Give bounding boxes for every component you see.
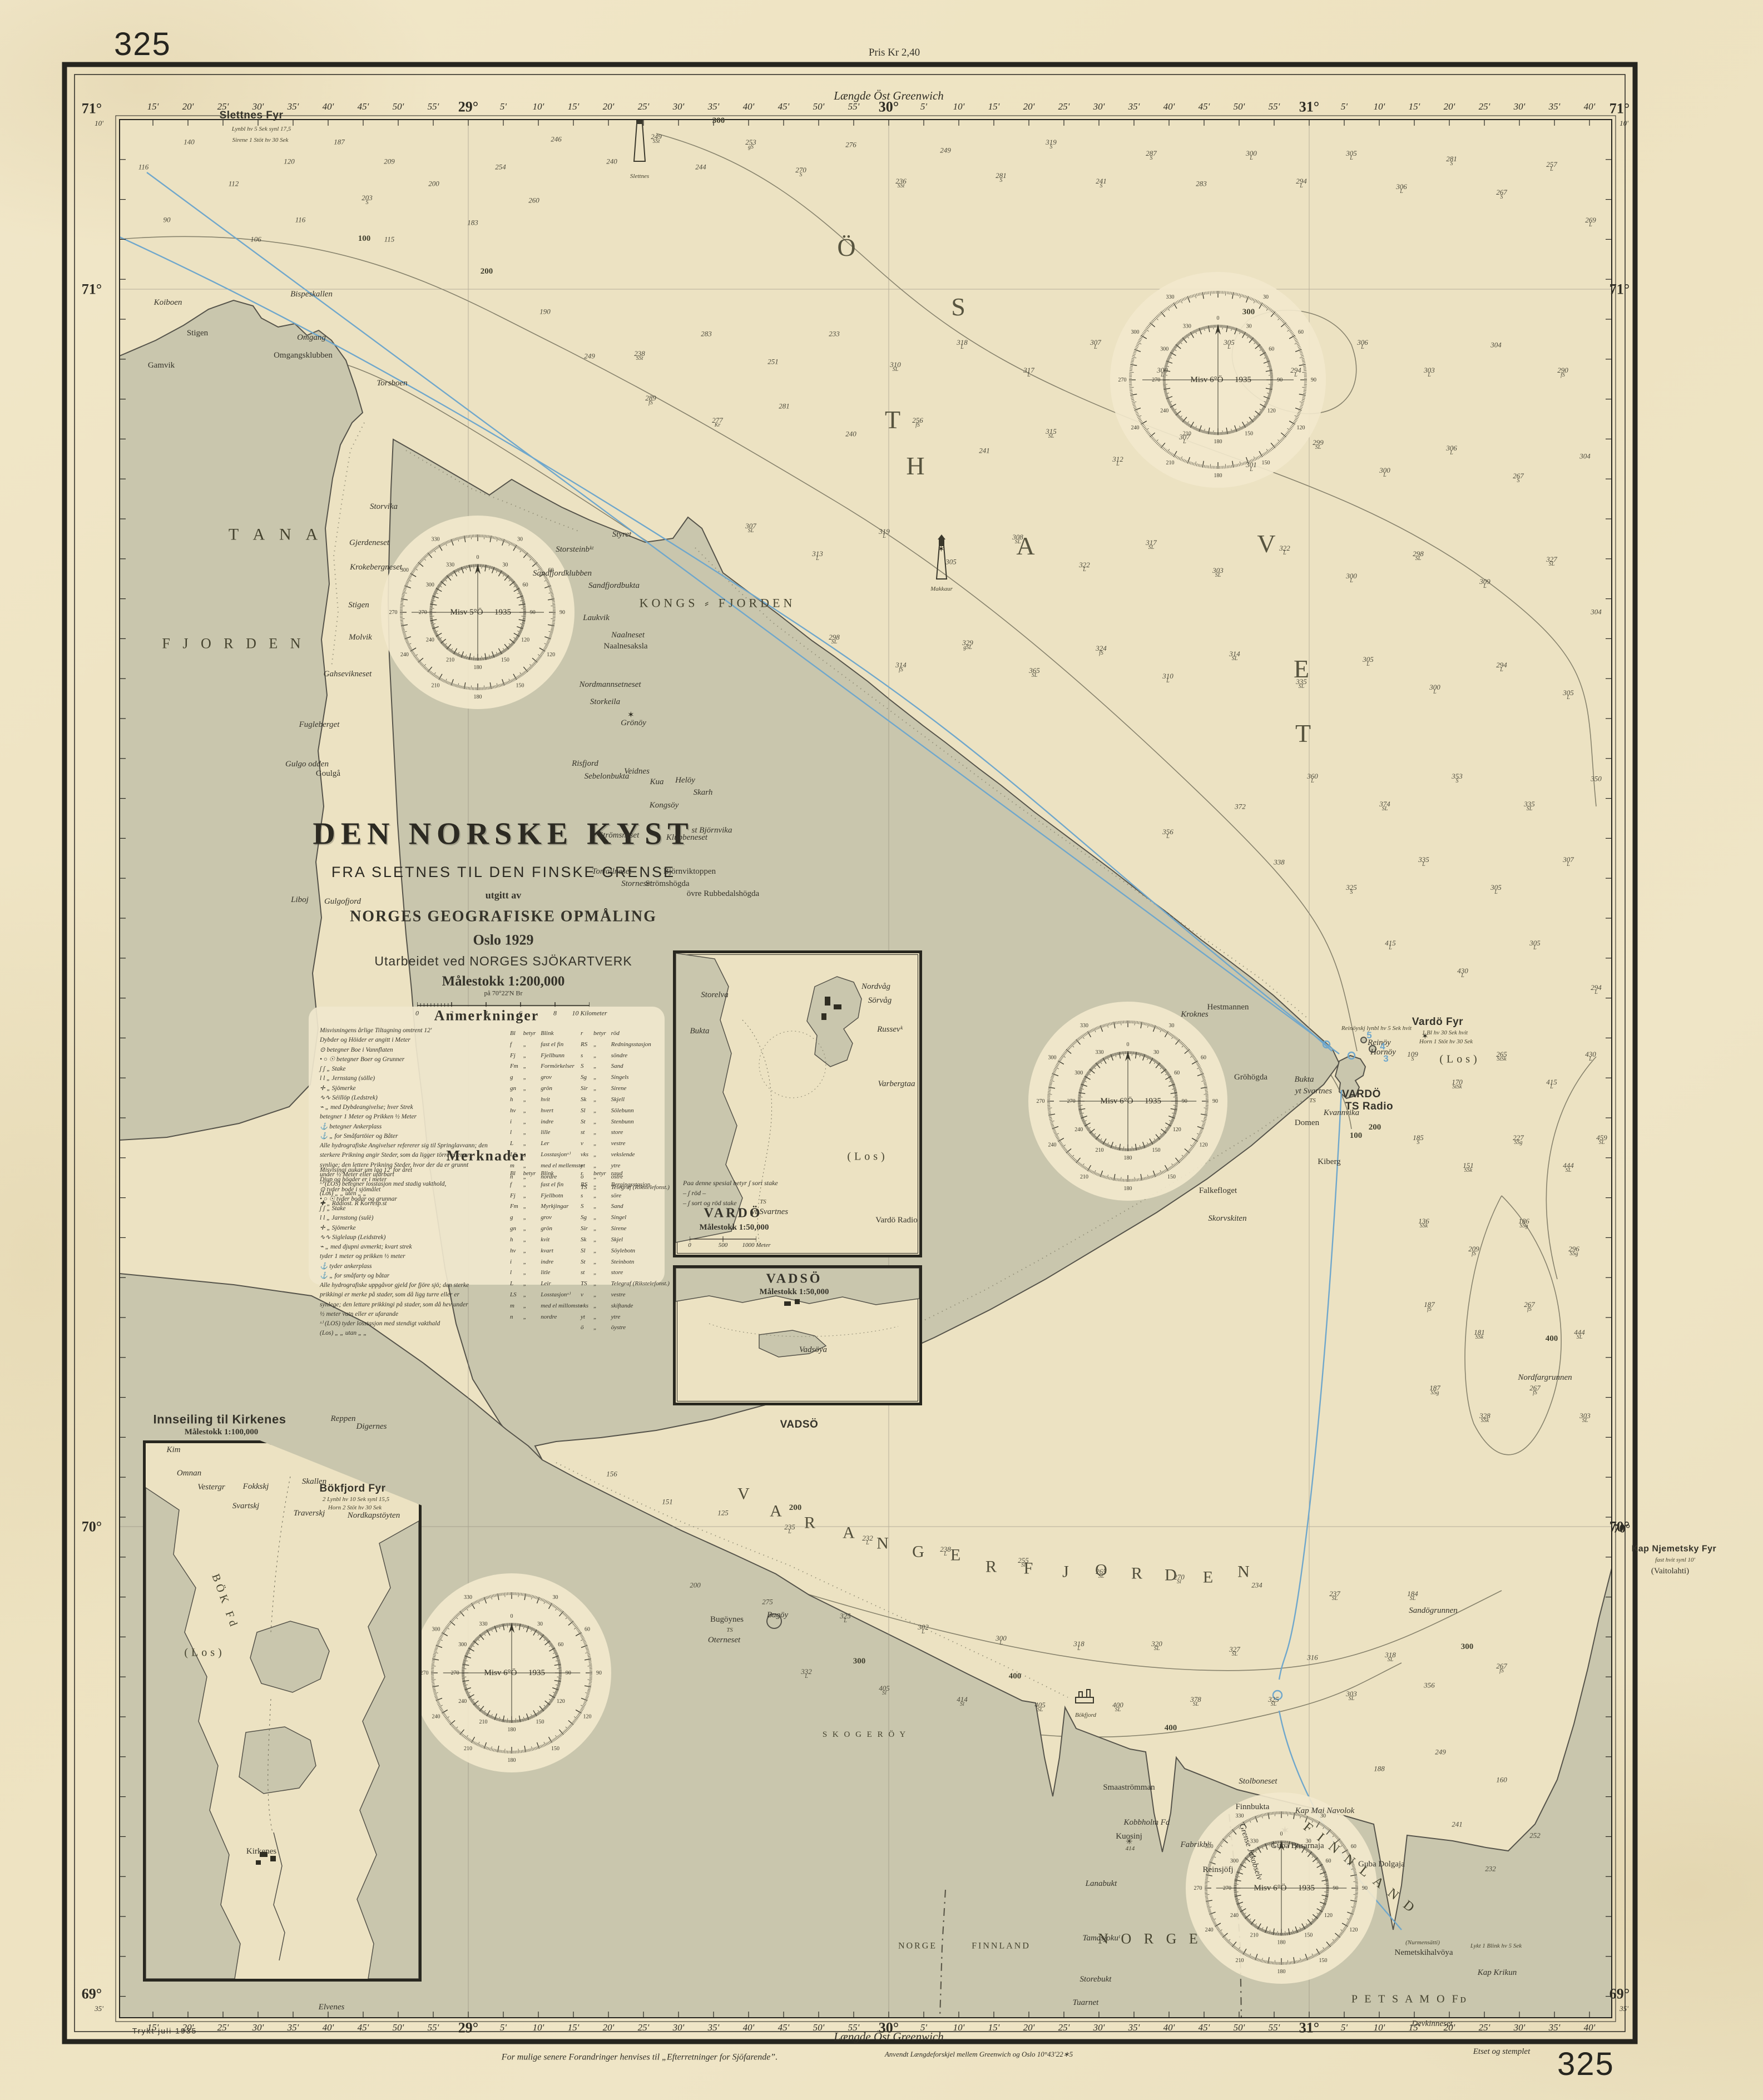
spread-name: P E T S A M O Fᴅ	[1351, 1994, 1468, 2005]
place-label: Nordkapstöyten	[348, 1512, 400, 1520]
sounding: 309L	[1479, 578, 1490, 590]
sea-name-osthavet-letter: H	[906, 453, 924, 479]
lon-label-top: 45'	[778, 102, 790, 112]
svg-text:120: 120	[1296, 425, 1305, 431]
place-label: Stigen	[348, 601, 369, 610]
place-label: Goulgå	[316, 770, 340, 779]
lon-label-top: 35'	[708, 102, 720, 112]
svg-text:180: 180	[1124, 1186, 1132, 1192]
sounding: 306L	[1396, 184, 1407, 195]
sounding: 265SL	[1096, 1568, 1107, 1579]
place-label: 414	[1126, 1846, 1135, 1853]
svg-text:300: 300	[1074, 1070, 1083, 1076]
place-label: Gahsevikneset	[324, 670, 372, 679]
sounding: 235L	[784, 1524, 795, 1535]
place-label: Bugöy	[767, 1611, 788, 1620]
lon-label-bottom: 30°	[879, 2020, 899, 2035]
sea-name-varangerfjorden-letter: G	[912, 1543, 924, 1561]
sounding: 181SSk	[1474, 1329, 1485, 1340]
sounding: 140	[184, 138, 195, 145]
legend-mrk-abbr-1: BlbetyrBlinkf„fast el finFj„FjellbotnFm„…	[509, 1168, 587, 1323]
sea-name-osthavet-letter: T	[885, 407, 900, 433]
meridian-note: Anvendt Længdeforskjel mellem Greenwich …	[885, 2051, 1073, 2058]
inset-kirkenes	[143, 1440, 422, 1982]
contour-depth-label: 300	[1461, 1643, 1474, 1652]
lon-label-bottom: 25'	[1479, 2023, 1490, 2033]
contour-depth-label: 300	[712, 117, 725, 126]
sounding: 372	[1235, 803, 1246, 809]
lat-label-left: 69°	[82, 1986, 102, 2001]
lon-label-top: 40'	[1163, 102, 1175, 112]
place-label: Nordfargrunnen	[1518, 1374, 1572, 1383]
svg-text:240: 240	[1048, 1142, 1057, 1148]
lon-label-bottom: 10'	[533, 2023, 544, 2033]
sounding: 270S	[795, 167, 806, 178]
sounding: 317SL	[1146, 539, 1157, 551]
sounding: 112	[229, 180, 239, 186]
place-label: TS	[726, 1627, 733, 1634]
place-label: Krokebergneset	[350, 563, 402, 572]
svg-text:240: 240	[1205, 1927, 1214, 1933]
sea-name-osthavet-letter: S	[951, 294, 965, 320]
sounding: 400SL	[1112, 1702, 1123, 1713]
sounding: 405Sl	[879, 1685, 890, 1696]
svg-text:180: 180	[1214, 473, 1222, 479]
sounding: 203S	[361, 195, 373, 206]
sounding: 305	[945, 558, 957, 564]
sounding: 325SL	[1268, 1696, 1279, 1707]
sounding: 238L	[940, 1546, 951, 1557]
svg-text:240: 240	[1074, 1127, 1083, 1133]
svg-text:210: 210	[432, 683, 440, 689]
svg-text:30: 30	[1246, 324, 1252, 330]
sounding: 270Sl	[1173, 1574, 1185, 1585]
lon-label-top: 20'	[603, 102, 615, 112]
sounding: 170StSk	[1452, 1079, 1463, 1090]
place-label: Fugleberget	[299, 721, 340, 730]
lon-label-bottom: 5'	[1341, 2023, 1348, 2033]
sounding: 90	[164, 216, 171, 222]
inset-vadso-title: VADSÖ	[766, 1272, 823, 1286]
lon-label-top: 10'	[953, 102, 965, 112]
place-label: Svartskj	[232, 1502, 259, 1511]
svg-text:240: 240	[432, 1714, 440, 1720]
sounding: 276	[845, 141, 856, 147]
kap-njemetsky-title: Kap Njemetsky Fyr	[1632, 1545, 1717, 1554]
sounding: 209fS	[1468, 1246, 1479, 1257]
lon-label-top: 20'	[182, 102, 194, 112]
svg-text:1935: 1935	[494, 608, 511, 617]
sounding: 322L	[1279, 545, 1290, 556]
lon-label-bottom: 55'	[428, 2023, 439, 2033]
place-label: 1 Bl hv 30 Sek hvit	[1422, 1030, 1468, 1037]
lon-label-top: 20'	[1023, 102, 1035, 112]
svg-text:0: 0	[1217, 315, 1220, 321]
lon-label-bottom: 55'	[1269, 2023, 1280, 2033]
place-label: Vestergr	[197, 1483, 225, 1492]
svg-text:270: 270	[1194, 1885, 1202, 1891]
svg-text:150: 150	[536, 1719, 544, 1725]
sounding: 310L	[1162, 673, 1173, 684]
lon-label-top: 31°	[1299, 99, 1319, 114]
lon-label-top: 30°	[879, 99, 899, 114]
sounding: 241	[1452, 1821, 1463, 1827]
compass-rose: 3060901201501802102402703003300306090120…	[1028, 1002, 1227, 1201]
svg-text:300: 300	[458, 1642, 467, 1648]
lat-min-right: 10'	[1620, 120, 1628, 127]
place-label: Kobbholm Fd	[1124, 1819, 1170, 1827]
sea-name-osthavet-letter: Ö	[837, 234, 855, 261]
sounding: 301L	[1246, 462, 1257, 473]
sounding: 325L	[840, 1613, 851, 1624]
svg-text:150: 150	[551, 1746, 559, 1752]
sounding: 319S	[1046, 139, 1057, 150]
corrections-note: For mulige senere Forandringer henvises …	[502, 2053, 777, 2063]
spread-name: F J O R D E N	[162, 636, 305, 651]
sounding: 305L	[1490, 884, 1502, 895]
place-label: Kirkenes	[246, 1848, 276, 1856]
sounding: 294L	[1290, 367, 1301, 378]
lon-label-top: 30'	[252, 102, 264, 112]
place-label: Naalnesaksla	[603, 642, 647, 651]
publisher: NORGES GEOGRAFISKE OPMÅLING	[350, 908, 657, 924]
lat-label-left: 70°	[82, 1519, 102, 1534]
sounding: 188	[1374, 1765, 1385, 1771]
svg-text:240: 240	[1131, 425, 1140, 431]
svg-text:330: 330	[1183, 324, 1191, 330]
lon-label-bottom: 50'	[393, 2023, 404, 2033]
svg-text:Misv 6°Ö: Misv 6°Ö	[1191, 375, 1224, 384]
place-label: Lanabukt	[1086, 1880, 1117, 1889]
place-label: Fabrikbᵏᵗ	[1180, 1841, 1211, 1850]
sounding: 256fS	[912, 417, 923, 428]
place-label: Kap Krikun	[1478, 1969, 1517, 1978]
place-label: Liboj	[291, 896, 309, 905]
place-label: Sandfjordklubben	[533, 569, 592, 578]
lon-label-top: 50'	[1234, 102, 1245, 112]
sounding: 414Sl	[957, 1696, 968, 1707]
sounding: 307L	[1563, 856, 1574, 868]
sounding: 303L	[1424, 367, 1435, 378]
place-label: Strömsneset	[599, 831, 640, 840]
sounding: 281S	[996, 172, 1007, 184]
place-label: 2 Lynbl hv 10 Sek synl 15,5	[323, 1497, 389, 1503]
place-label: Smaaströmman	[1103, 1784, 1155, 1792]
place-label: Koiboen	[154, 299, 182, 308]
sounding: 300L	[1157, 367, 1168, 378]
sounding: 459SL	[1596, 1135, 1607, 1146]
place-label: Digernes	[356, 1423, 387, 1432]
place-label: Strömshögda	[645, 880, 689, 889]
sounding: 313L	[812, 551, 823, 562]
inset-vardo-label: TS	[760, 1199, 766, 1206]
svg-text:60: 60	[1201, 1055, 1206, 1061]
compass-rose: 3060901201501802102402703003300306090120…	[381, 516, 575, 709]
lon-label-top: 40'	[323, 102, 334, 112]
lon-label-bottom: 25'	[638, 2023, 650, 2033]
place-label: Torsboen	[377, 379, 407, 388]
svg-text:150: 150	[1304, 1932, 1313, 1938]
place-label: Kap Mai Navolok	[1295, 1807, 1355, 1816]
place-label: Gulgo odden	[285, 760, 329, 769]
sounding: 232L	[862, 1535, 873, 1546]
place-label: VADSÖ	[780, 1419, 819, 1430]
lon-label-bottom: 45'	[358, 2023, 369, 2033]
sounding: 251	[767, 358, 779, 364]
sounding: 300L	[1379, 467, 1390, 478]
scale-bar-tick: 4	[484, 1010, 488, 1017]
lat-label-right: 71°	[1610, 101, 1630, 116]
svg-text:180: 180	[508, 1727, 516, 1733]
svg-text:120: 120	[583, 1714, 591, 1720]
lat-min-left: 10'	[95, 120, 103, 127]
compass-rose: 3060901201501802102402703003300306090120…	[1110, 272, 1326, 488]
place-label: Bispeskallen	[290, 290, 333, 299]
scale-bar-tick: 8	[553, 1010, 557, 1017]
sounding: 249	[940, 147, 951, 153]
svg-text:240: 240	[1160, 408, 1168, 414]
compass-rose: 3060901201501802102402703003300306090120…	[412, 1573, 611, 1772]
sounding: 314SL	[1229, 651, 1240, 662]
svg-text:330: 330	[432, 536, 440, 542]
lon-label-bottom: 40'	[1584, 2023, 1596, 2033]
sounding: 267fS	[1524, 1301, 1535, 1312]
sounding: 267S	[1496, 189, 1507, 200]
svg-text:180: 180	[1277, 1969, 1286, 1975]
chart-number-top-left: 325	[114, 26, 171, 63]
svg-text:Misv 5°Ö: Misv 5°Ö	[450, 607, 483, 617]
place-label: Kongsöy	[650, 801, 679, 810]
svg-text:270: 270	[389, 610, 398, 616]
place-label: Laukvik	[583, 614, 609, 623]
sea-name-varangerfjorden-letter: E	[950, 1546, 960, 1564]
lon-label-top: 55'	[848, 102, 860, 112]
place-label: Storebukt	[1080, 1975, 1112, 1984]
sounding: 298SL	[829, 634, 840, 645]
lon-label-bottom: 15'	[147, 2023, 159, 2033]
svg-text:150: 150	[1262, 460, 1270, 466]
sounding: 187	[334, 138, 345, 145]
place-label: Björnviktoppen	[663, 868, 716, 876]
svg-text:300: 300	[1230, 1858, 1239, 1864]
contour-depth-label: 200	[789, 1504, 802, 1513]
sounding: 187fS	[1424, 1301, 1435, 1312]
lon-label-bottom: 40'	[743, 2023, 755, 2033]
place-label: Bukta	[1295, 1076, 1314, 1084]
sounding: 267fS	[1529, 1385, 1541, 1396]
svg-text:330: 330	[464, 1594, 472, 1601]
lon-label-top: 45'	[1199, 102, 1210, 112]
sea-name-varangerfjorden-letter: N	[1237, 1563, 1250, 1581]
svg-text:90: 90	[1212, 1098, 1218, 1105]
inset-vardo-label: (Los)	[847, 1151, 888, 1163]
kap-njemetsky-sub: fast hvit synl 10'	[1655, 1557, 1695, 1564]
inset-vardo-label: Nordvåg	[861, 983, 890, 992]
sounding: 255Sl	[1018, 1557, 1029, 1568]
lat-label-left: 71°	[82, 101, 102, 116]
sounding: 232	[1485, 1865, 1496, 1871]
svg-text:120: 120	[557, 1698, 565, 1705]
sounding: 306L	[1357, 339, 1368, 350]
sounding: 296SSg	[1568, 1246, 1579, 1257]
svg-text:180: 180	[474, 694, 482, 700]
sounding: 294L	[1296, 178, 1307, 189]
edition: Oslo 1929	[473, 932, 533, 947]
sounding: 303SL	[1212, 567, 1224, 578]
sounding: 305L	[1346, 150, 1357, 161]
place-label: Kim	[166, 1446, 180, 1455]
sounding: 267fS	[1496, 1663, 1507, 1674]
svg-text:210: 210	[464, 1746, 472, 1752]
place-label: TS	[1309, 1098, 1316, 1105]
place-label: Kroknes	[1181, 1011, 1208, 1019]
sounding: 378SL	[1190, 1696, 1201, 1707]
lon-label-top: 35'	[288, 102, 299, 112]
svg-text:210: 210	[1236, 1958, 1244, 1964]
place-label: Omnan	[177, 1469, 201, 1478]
lon-label-top: 5'	[500, 102, 507, 112]
lon-label-bottom: 25'	[217, 2023, 229, 2033]
svg-text:210: 210	[479, 1719, 488, 1725]
svg-text:180: 180	[1214, 439, 1222, 445]
route-number: 3	[1383, 1054, 1388, 1064]
sounding: 300L	[996, 1635, 1007, 1646]
place-label: Stolboneset	[1239, 1777, 1277, 1786]
sounding: 184SL	[1407, 1591, 1418, 1602]
place-label: Kvannvika	[1324, 1109, 1359, 1118]
svg-text:180: 180	[1124, 1155, 1132, 1161]
place-label: Horn 1 Stöt hv 30 Sek	[1419, 1039, 1473, 1046]
place-label: Horn 2 Stöt hv 30 Sek	[328, 1505, 382, 1512]
svg-text:1935: 1935	[528, 1668, 545, 1677]
sounding: 318L	[957, 339, 968, 350]
sounding: 328SSk	[1479, 1413, 1490, 1424]
svg-text:330: 330	[1236, 1813, 1244, 1819]
sounding: 327SL	[1546, 556, 1557, 567]
compass-rose: 3060901201501802102402703003300306090120…	[1186, 1792, 1377, 1984]
sounding: 275	[762, 1598, 773, 1604]
svg-text:330: 330	[479, 1621, 488, 1627]
place-label: Omgang	[297, 334, 326, 343]
contour-depth-label: 400	[1009, 1672, 1022, 1681]
place-label: Gröhögda	[1234, 1073, 1267, 1082]
sounding: 365SL	[1029, 667, 1040, 678]
sounding: 116	[295, 216, 306, 222]
place-label: Elvenes	[319, 2003, 345, 2012]
place-label: Traverskj	[294, 1509, 325, 1518]
lon-label-top: 35'	[1128, 102, 1140, 112]
sea-name-varangerfjorden-letter: A	[770, 1502, 782, 1520]
svg-text:150: 150	[1319, 1958, 1328, 1964]
svg-text:60: 60	[1325, 1858, 1331, 1864]
sea-name-varangerfjorden-letter: R	[1131, 1564, 1142, 1582]
route-number: 5	[1366, 1031, 1371, 1041]
place-label: Nordmannsetneset	[579, 681, 641, 690]
svg-text:90: 90	[559, 610, 565, 616]
svg-text:60: 60	[1298, 329, 1304, 335]
lon-label-bottom: 45'	[1199, 2023, 1210, 2033]
sounding: 305L	[1563, 690, 1574, 701]
sounding: 249	[584, 353, 595, 359]
place-label: övre Rubbedalshögda	[687, 890, 759, 899]
place-label: (Nurmensätti)	[1405, 1940, 1440, 1947]
sounding: 187SSg	[1429, 1385, 1440, 1396]
sounding: 335SL	[1524, 801, 1535, 812]
sounding: 227SSg	[1513, 1135, 1524, 1146]
svg-text:180: 180	[508, 1757, 516, 1764]
lon-label-bottom: 25'	[1058, 2023, 1070, 2033]
inset-vardo-label: Varbergtaa	[878, 1080, 915, 1089]
svg-text:120: 120	[1324, 1913, 1333, 1919]
sounding: 307L	[1179, 434, 1190, 445]
inset-vardo-label: Sörvåg	[868, 997, 892, 1006]
sounding: 160	[1496, 1776, 1507, 1782]
sounding: 327SL	[1229, 1646, 1240, 1657]
sea-name-varangerfjorden-letter: V	[737, 1485, 750, 1503]
lon-label-top: 40'	[1584, 102, 1596, 112]
sounding: 317L	[1023, 367, 1034, 378]
scale-bar-tick: 2	[450, 1010, 453, 1017]
svg-text:270: 270	[1037, 1098, 1045, 1105]
place-label: Vardö Fyr	[1412, 1017, 1463, 1028]
sounding: 249SSt	[651, 133, 662, 145]
lat-label-right: 71°	[1610, 281, 1630, 296]
svg-text:240: 240	[426, 637, 434, 643]
svg-text:270: 270	[1118, 377, 1127, 383]
issued-by: utgitt av	[486, 890, 522, 901]
place-label: Grönöy	[621, 719, 646, 728]
place-label: Naalneset	[611, 631, 645, 640]
place-label: Storvika	[370, 503, 398, 512]
etched-note: Etset og stemplet	[1473, 2048, 1530, 2057]
svg-text:60: 60	[1269, 346, 1274, 352]
sounding: 254	[495, 164, 506, 170]
svg-text:Misv 6°Ö: Misv 6°Ö	[484, 1668, 517, 1677]
lon-label-bottom: 35'	[708, 2023, 720, 2033]
contour-depth-label: 100	[1350, 1132, 1363, 1141]
scale-latitude: på 70°22'N Br	[484, 990, 523, 997]
sounding: 356	[1424, 1682, 1435, 1688]
sounding: 283	[1196, 180, 1207, 186]
sounding: 312L	[1112, 456, 1123, 467]
sounding: 303SL	[1579, 1413, 1591, 1424]
lon-label-bottom: 30'	[1514, 2023, 1526, 2033]
sounding: 300L	[1346, 573, 1357, 584]
sounding: 267S	[1513, 473, 1524, 484]
svg-text:300: 300	[1160, 346, 1168, 352]
lon-label-bottom: 20'	[603, 2023, 615, 2033]
sounding: 252	[1529, 1832, 1541, 1838]
inset-vardo-bar-tick: 500	[719, 1242, 728, 1249]
sounding: 186SSg	[1518, 1218, 1529, 1229]
sounding: 109S	[1407, 1051, 1418, 1062]
svg-text:120: 120	[547, 652, 555, 658]
svg-text:210: 210	[1096, 1147, 1104, 1153]
lon-label-top: 50'	[813, 102, 825, 112]
lon-label-top: 35'	[1549, 102, 1561, 112]
place-label: (Los)	[1439, 1054, 1480, 1066]
place-label: Vadsöya	[799, 1346, 827, 1355]
sounding: 300L	[1246, 150, 1257, 161]
place-label: yt Svartnes	[1295, 1087, 1332, 1096]
place-label: Storkeila	[590, 698, 620, 707]
lon-label-bottom: 20'	[182, 2023, 194, 2033]
sounding: 277Kr	[712, 417, 723, 428]
lon-label-top: 45'	[358, 102, 369, 112]
lon-label-bottom: 15'	[568, 2023, 580, 2033]
sounding: 338	[1274, 859, 1285, 865]
sea-name-osthavet-letter: T	[1295, 720, 1311, 747]
